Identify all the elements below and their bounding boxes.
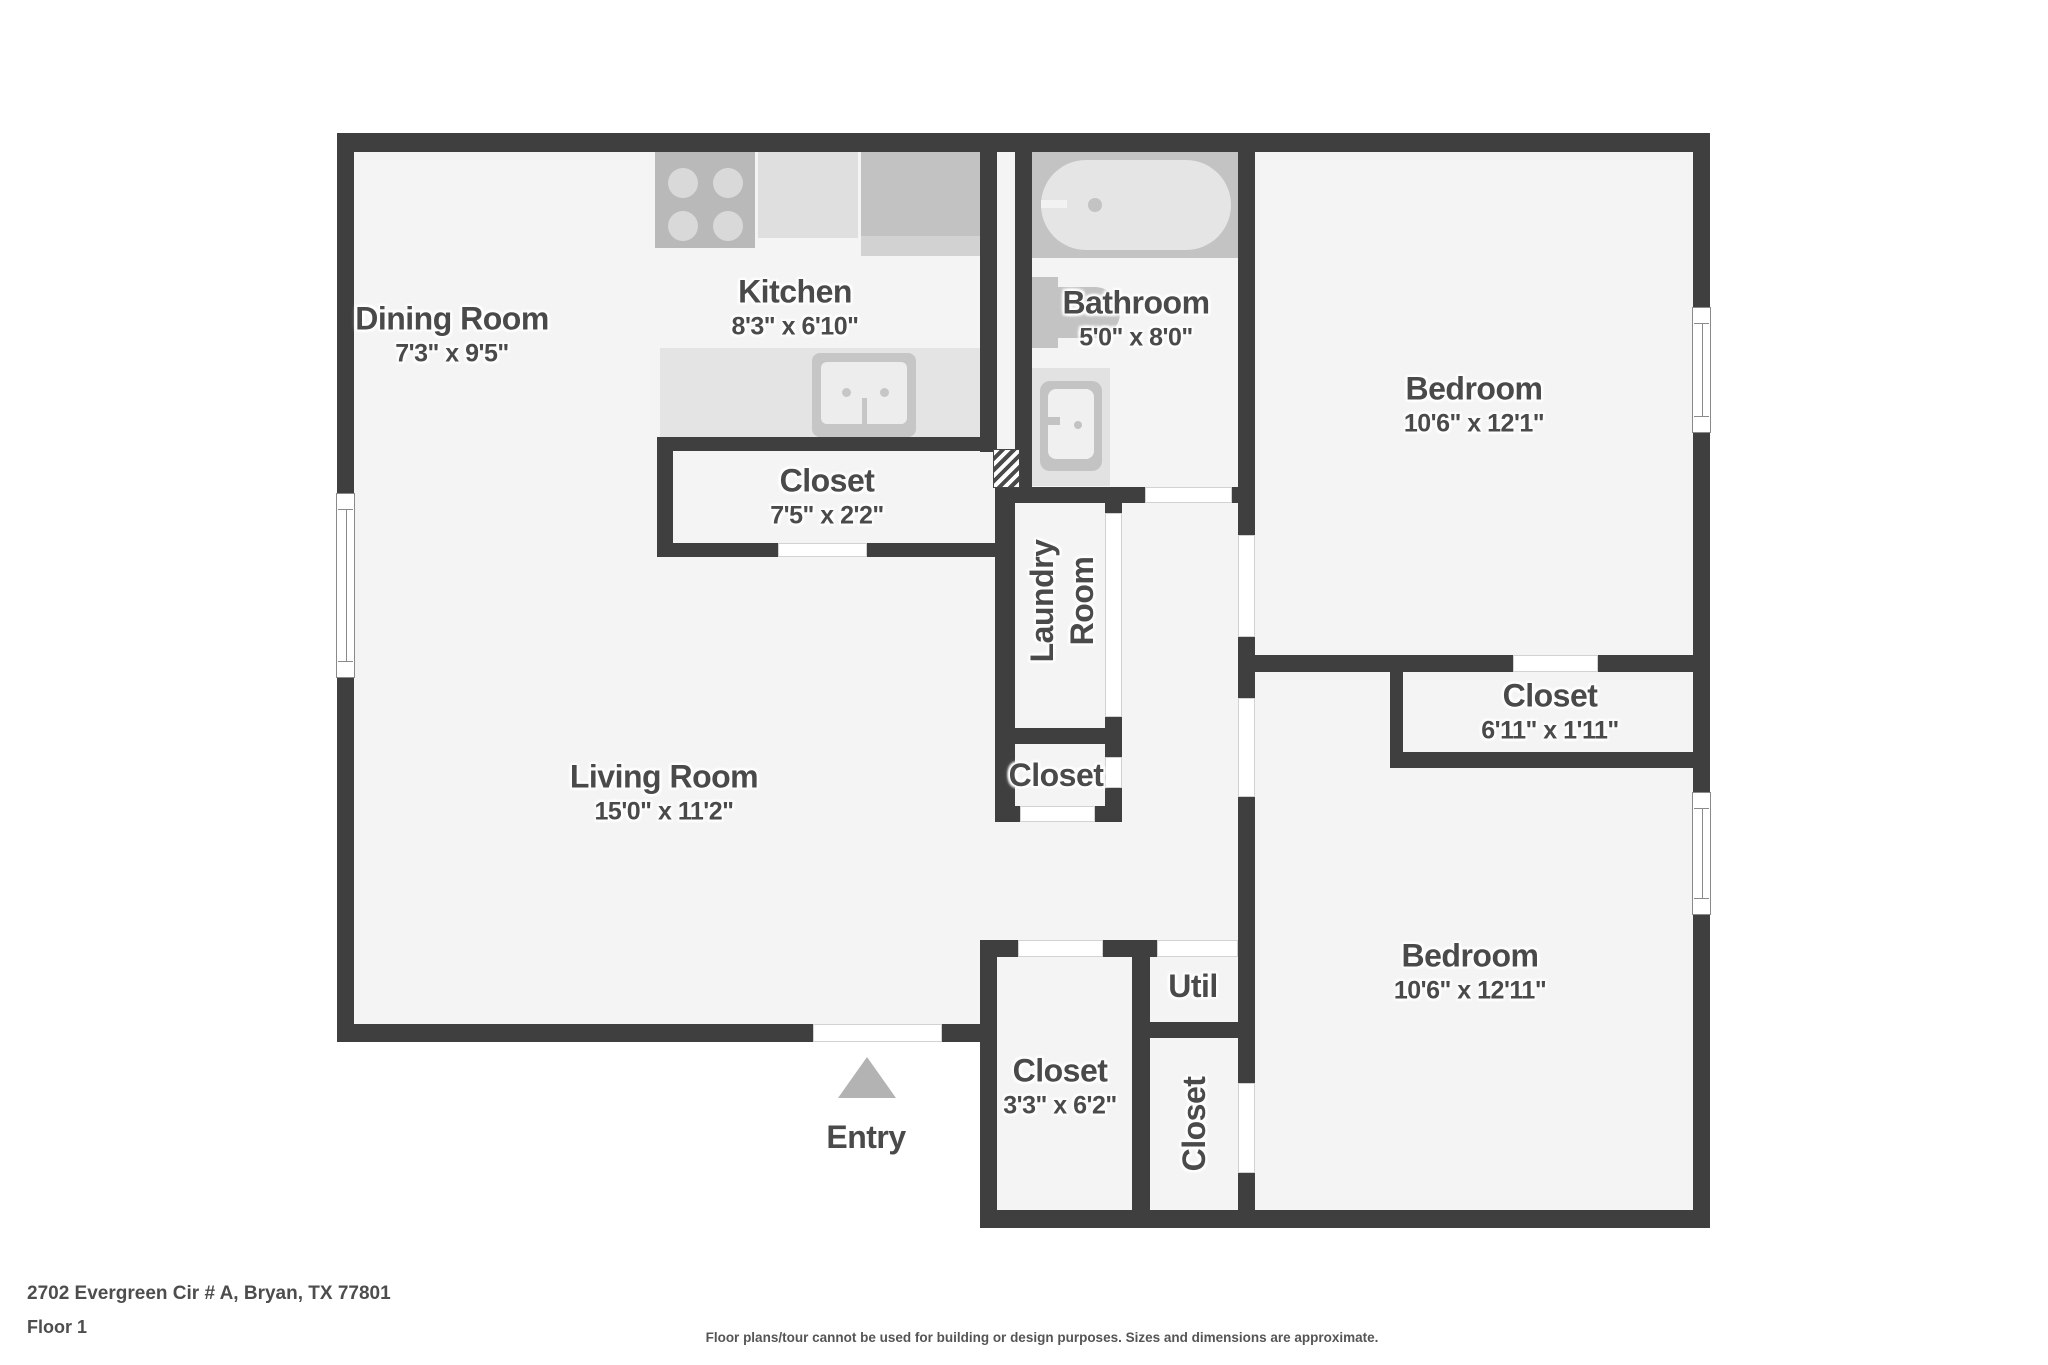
wall-closet-strip-bottom <box>1390 752 1710 768</box>
wall-outer-top <box>337 133 1710 152</box>
wall-bedroom-top-bottom <box>1250 655 1710 672</box>
room-name: Closet <box>1174 1077 1214 1172</box>
entry-arrow-icon <box>838 1057 896 1098</box>
window-pane <box>1694 808 1709 899</box>
room-label-bedroom-bottom-closet: Closet <box>1174 1077 1214 1172</box>
kitchen-counter <box>758 152 858 238</box>
room-label-bedroom-top: Bedroom 10'6" x 12'1" <box>1404 369 1544 440</box>
door-opening-bedroom-top <box>1238 535 1255 637</box>
room-label-bedroom-top-closet: Closet 6'11" x 1'11" <box>1481 676 1619 747</box>
bathroom-sink-faucet-icon <box>1048 417 1060 425</box>
floor-number-text: Floor 1 <box>27 1317 87 1338</box>
room-name: Closet <box>1481 676 1619 716</box>
door-opening-closet-bedroom-bottom <box>1238 1083 1255 1173</box>
door-opening-entry-closet <box>1018 940 1103 957</box>
room-dims: 8'3" x 6'10" <box>732 312 859 343</box>
room-dims: 5'0" x 8'0" <box>1062 323 1209 354</box>
room-name: Closet <box>1003 1051 1117 1091</box>
room-label-entry-closet: Closet 3'3" x 6'2" <box>1003 1051 1117 1122</box>
room-label-hall-closet: Closet <box>1009 755 1104 795</box>
room-name: Entry <box>826 1117 905 1157</box>
room-label-entry: Entry <box>826 1117 905 1157</box>
room-name: Laundry <box>1022 540 1062 663</box>
window-pane <box>338 509 353 662</box>
wall-outer-bottom <box>980 1210 1710 1228</box>
room-name: Bedroom <box>1394 936 1546 976</box>
room-name: Closet <box>770 461 884 501</box>
room-name: Room <box>1062 540 1102 663</box>
stove-burner-icon <box>713 211 743 241</box>
room-dims: 6'11" x 1'11" <box>1481 716 1619 747</box>
floor-bedroom-bottom <box>1250 650 1705 1215</box>
room-label-dining: Dining Room 7'3" x 9'5" <box>355 299 549 370</box>
refrigerator-icon <box>861 236 980 256</box>
room-name: Bathroom <box>1062 283 1209 323</box>
door-opening-util <box>1157 940 1238 957</box>
room-name: Bedroom <box>1404 369 1544 409</box>
bathtub-icon <box>1041 160 1231 250</box>
door-opening-bathroom <box>1145 487 1232 503</box>
room-label-kitchen: Kitchen 8'3" x 6'10" <box>732 272 859 343</box>
window-pane <box>1694 323 1709 417</box>
window <box>1692 307 1711 433</box>
room-dims: 3'3" x 6'2" <box>1003 1091 1117 1122</box>
door-opening-hall-closet-bottom <box>1020 806 1095 822</box>
wall-kitchen-closet-left <box>657 437 673 557</box>
window <box>1692 792 1711 915</box>
bathroom-sink-faucet-icon <box>1074 421 1082 429</box>
door-opening-closet-bedroom-top <box>1513 655 1598 672</box>
room-name: Util <box>1168 966 1218 1006</box>
door-opening-entry <box>813 1024 942 1042</box>
wall-kitchen-closet-top <box>657 437 997 451</box>
room-dims: 7'3" x 9'5" <box>355 339 549 370</box>
room-label-living: Living Room 15'0" x 11'2" <box>570 757 758 828</box>
wall-entry-column-left <box>980 940 997 1228</box>
wall-kitchen-right <box>980 152 997 452</box>
room-label-kitchen-closet: Closet 7'5" x 2'2" <box>770 461 884 532</box>
window <box>336 493 355 678</box>
room-label-bedroom-bottom: Bedroom 10'6" x 12'11" <box>1394 936 1546 1007</box>
room-dims: 7'5" x 2'2" <box>770 501 884 532</box>
kitchen-sink-faucet-icon <box>842 388 851 397</box>
door-opening-laundry <box>1105 513 1122 717</box>
utility-shaft-hatch-icon <box>993 449 1020 488</box>
bathtub-faucet-icon <box>1088 198 1102 212</box>
room-label-laundry: Laundry Room <box>1022 540 1102 663</box>
toilet-icon <box>1032 277 1058 348</box>
kitchen-sink-faucet-icon <box>880 388 889 397</box>
wall-bedroom-spine <box>1238 152 1255 1228</box>
refrigerator-icon <box>861 152 980 236</box>
kitchen-sink-divider <box>862 398 867 424</box>
room-label-util: Util <box>1168 966 1218 1006</box>
room-name: Dining Room <box>355 299 549 339</box>
stove-burner-icon <box>713 168 743 198</box>
disclaimer-text: Floor plans/tour cannot be used for buil… <box>706 1330 1379 1345</box>
room-dims: 10'6" x 12'11" <box>1394 976 1546 1007</box>
address-text: 2702 Evergreen Cir # A, Bryan, TX 77801 <box>27 1283 391 1305</box>
wall-util-bottom <box>1150 1022 1255 1038</box>
stove-burner-icon <box>668 211 698 241</box>
bathtub-faucet-icon <box>1041 200 1067 208</box>
room-name: Kitchen <box>732 272 859 312</box>
room-label-bathroom: Bathroom 5'0" x 8'0" <box>1062 283 1209 354</box>
door-opening-kitchen-closet <box>778 543 867 557</box>
stove-burner-icon <box>668 168 698 198</box>
room-dims: 10'6" x 12'1" <box>1404 409 1544 440</box>
room-name: Closet <box>1009 755 1104 795</box>
wall-outer-right <box>1693 133 1710 1228</box>
room-name: Living Room <box>570 757 758 797</box>
door-opening-hall-closet-side <box>1105 757 1122 788</box>
floor-plan-canvas: Dining Room 7'3" x 9'5" Kitchen 8'3" x 6… <box>0 0 2048 1365</box>
wall-laundry-bottom <box>995 728 1122 744</box>
room-dims: 15'0" x 11'2" <box>570 797 758 828</box>
door-opening-bedroom-bottom <box>1238 698 1255 797</box>
wall-entry-column-divider <box>1132 940 1150 1228</box>
